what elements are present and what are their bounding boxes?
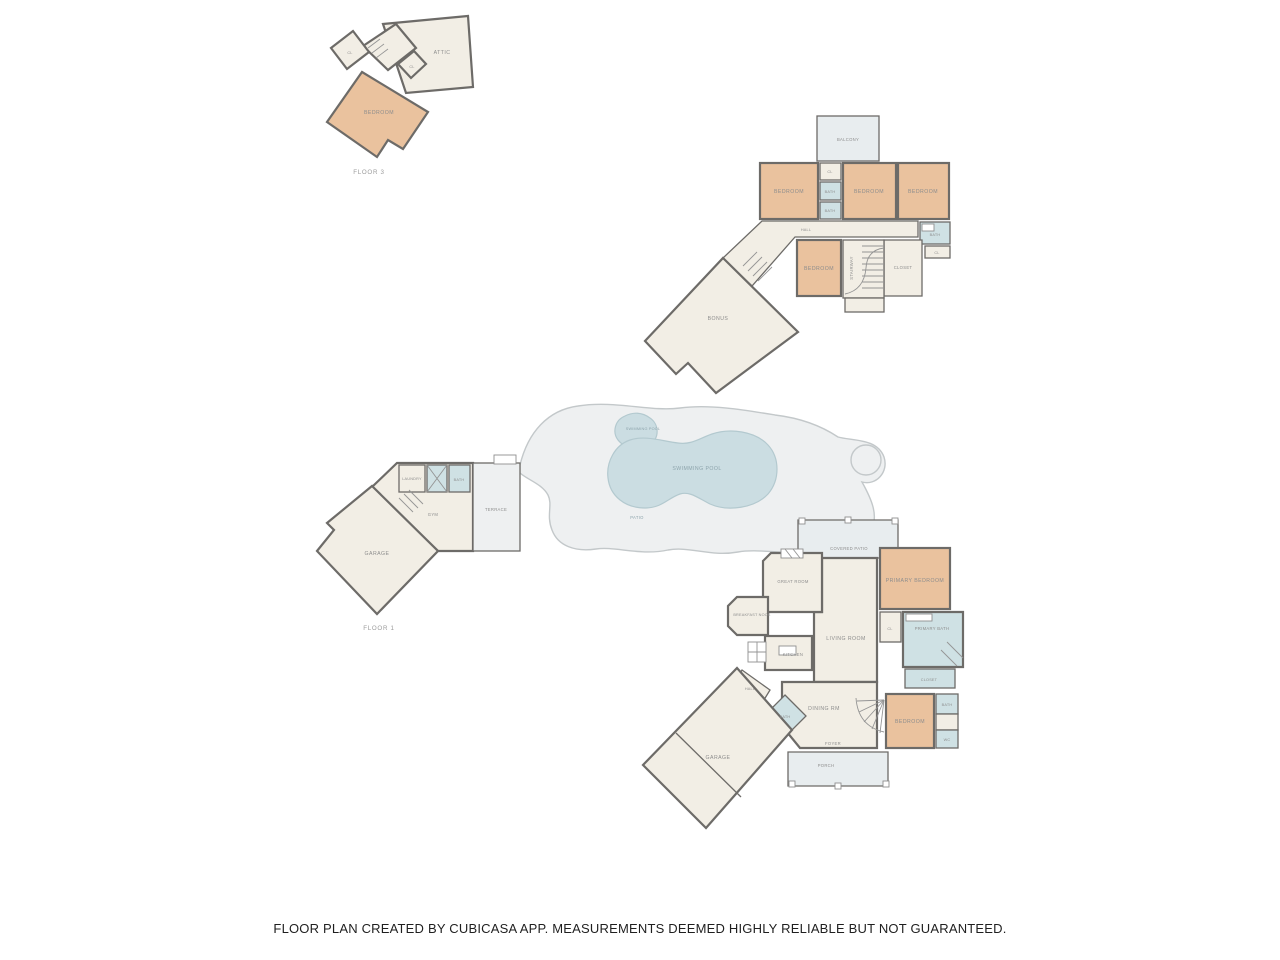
covered-patio-label: COVERED PATIO	[830, 546, 868, 551]
room-floor2-bonus	[645, 258, 798, 393]
room-living	[814, 558, 877, 682]
floor2-bedroom-right-label: BEDROOM	[908, 189, 938, 195]
floor2-bath-lower-label: BATH	[825, 209, 836, 213]
bath-hall-label: BATH	[780, 715, 791, 719]
dining-label: DINING RM	[808, 706, 840, 712]
balcony-label: BALCONY	[837, 137, 859, 142]
floor2-bedroom-left-label: BEDROOM	[774, 189, 804, 195]
room-porch	[788, 752, 888, 786]
gym-label: GYM	[428, 512, 439, 517]
floor3-plan: ATTIC CL CL BEDROOM FLOOR 3	[327, 16, 473, 176]
foyer-label: FOYER	[825, 741, 841, 746]
floor2-closet-label: CLOSET	[894, 265, 913, 270]
floor2-bedroom-middle-label: BEDROOM	[854, 189, 884, 195]
floor2-bath-right-label: BATH	[930, 233, 941, 237]
kitchen-label: KITCHEN	[783, 652, 803, 657]
laundry-label: LAUNDRY	[402, 477, 422, 481]
floor2-stairway-label: STAIRWAY	[849, 256, 854, 279]
bath-guest-hall	[936, 714, 958, 730]
floor2-closet-top-label: CL	[827, 170, 832, 174]
floor2-plan: BALCONY BEDROOM CL BATH BATH BEDROOM BED…	[645, 116, 950, 393]
spa-label: SWIMMING POOL	[626, 427, 660, 431]
porch-label: PORCH	[818, 763, 835, 768]
hall-label: HALL	[745, 687, 755, 691]
floor3-title: FLOOR 3	[353, 169, 384, 176]
pool-label: SWIMMING POOL	[672, 466, 721, 472]
floor2-hall-label: HALL	[801, 228, 811, 232]
bath-guest-label: BATH	[942, 703, 953, 707]
floor3-closet-a-label: CL	[409, 65, 414, 69]
floor3-closet-b-label: CL	[347, 51, 352, 55]
primary-bedroom-label: PRIMARY BEDROOM	[886, 578, 944, 584]
floor2-bath-upper-label: BATH	[825, 190, 836, 194]
floor2-stair-landing	[845, 298, 884, 312]
garage-west-label: GARAGE	[365, 551, 390, 557]
floor3-bedroom-label: BEDROOM	[364, 110, 394, 116]
great-room-label: GREAT ROOM	[777, 579, 808, 584]
floor2-closet-small-label: CL	[934, 251, 939, 255]
garage-east-label: GARAGE	[706, 755, 731, 761]
floor-plan-canvas: ATTIC CL CL BEDROOM FLOOR 3	[0, 0, 1280, 960]
fireplace	[781, 549, 803, 558]
floor2-bedroom-center-label: BEDROOM	[804, 266, 834, 272]
room-garage-east	[643, 668, 792, 828]
primary-bath-label: PRIMARY BATH	[915, 626, 950, 631]
floor1-title: FLOOR 1	[363, 625, 394, 632]
round-spa	[851, 445, 881, 475]
disclaimer-text: FLOOR PLAN CREATED BY CUBICASA APP. MEAS…	[0, 921, 1280, 936]
primary-bath-vanity	[906, 614, 932, 621]
attic-label: ATTIC	[434, 50, 451, 56]
floor1-plan: GARAGE LAUNDRY BATH GYM TERRACE PATIO SW…	[317, 404, 963, 828]
breakfast-nook-label: BREAKFAST NOOK	[733, 613, 771, 617]
floor-plan-drawing: ATTIC CL CL BEDROOM FLOOR 3	[0, 0, 1280, 960]
patio-label: PATIO	[630, 515, 644, 520]
closet-label: CLOSET	[921, 678, 938, 682]
grill-fixture	[494, 455, 516, 464]
terrace-label: TERRACE	[485, 507, 507, 512]
room-floor3-closet-b	[331, 31, 369, 69]
closet-cl-label: CL	[887, 627, 892, 631]
bedroom-label: BEDROOM	[895, 719, 925, 725]
living-room-label: LIVING ROOM	[826, 636, 866, 642]
wc-label: WC	[944, 738, 951, 742]
floor2-bonus-label: BONUS	[708, 316, 729, 322]
floor2-bath-vanity	[922, 224, 934, 231]
bath-poolhouse-label: BATH	[454, 478, 465, 482]
